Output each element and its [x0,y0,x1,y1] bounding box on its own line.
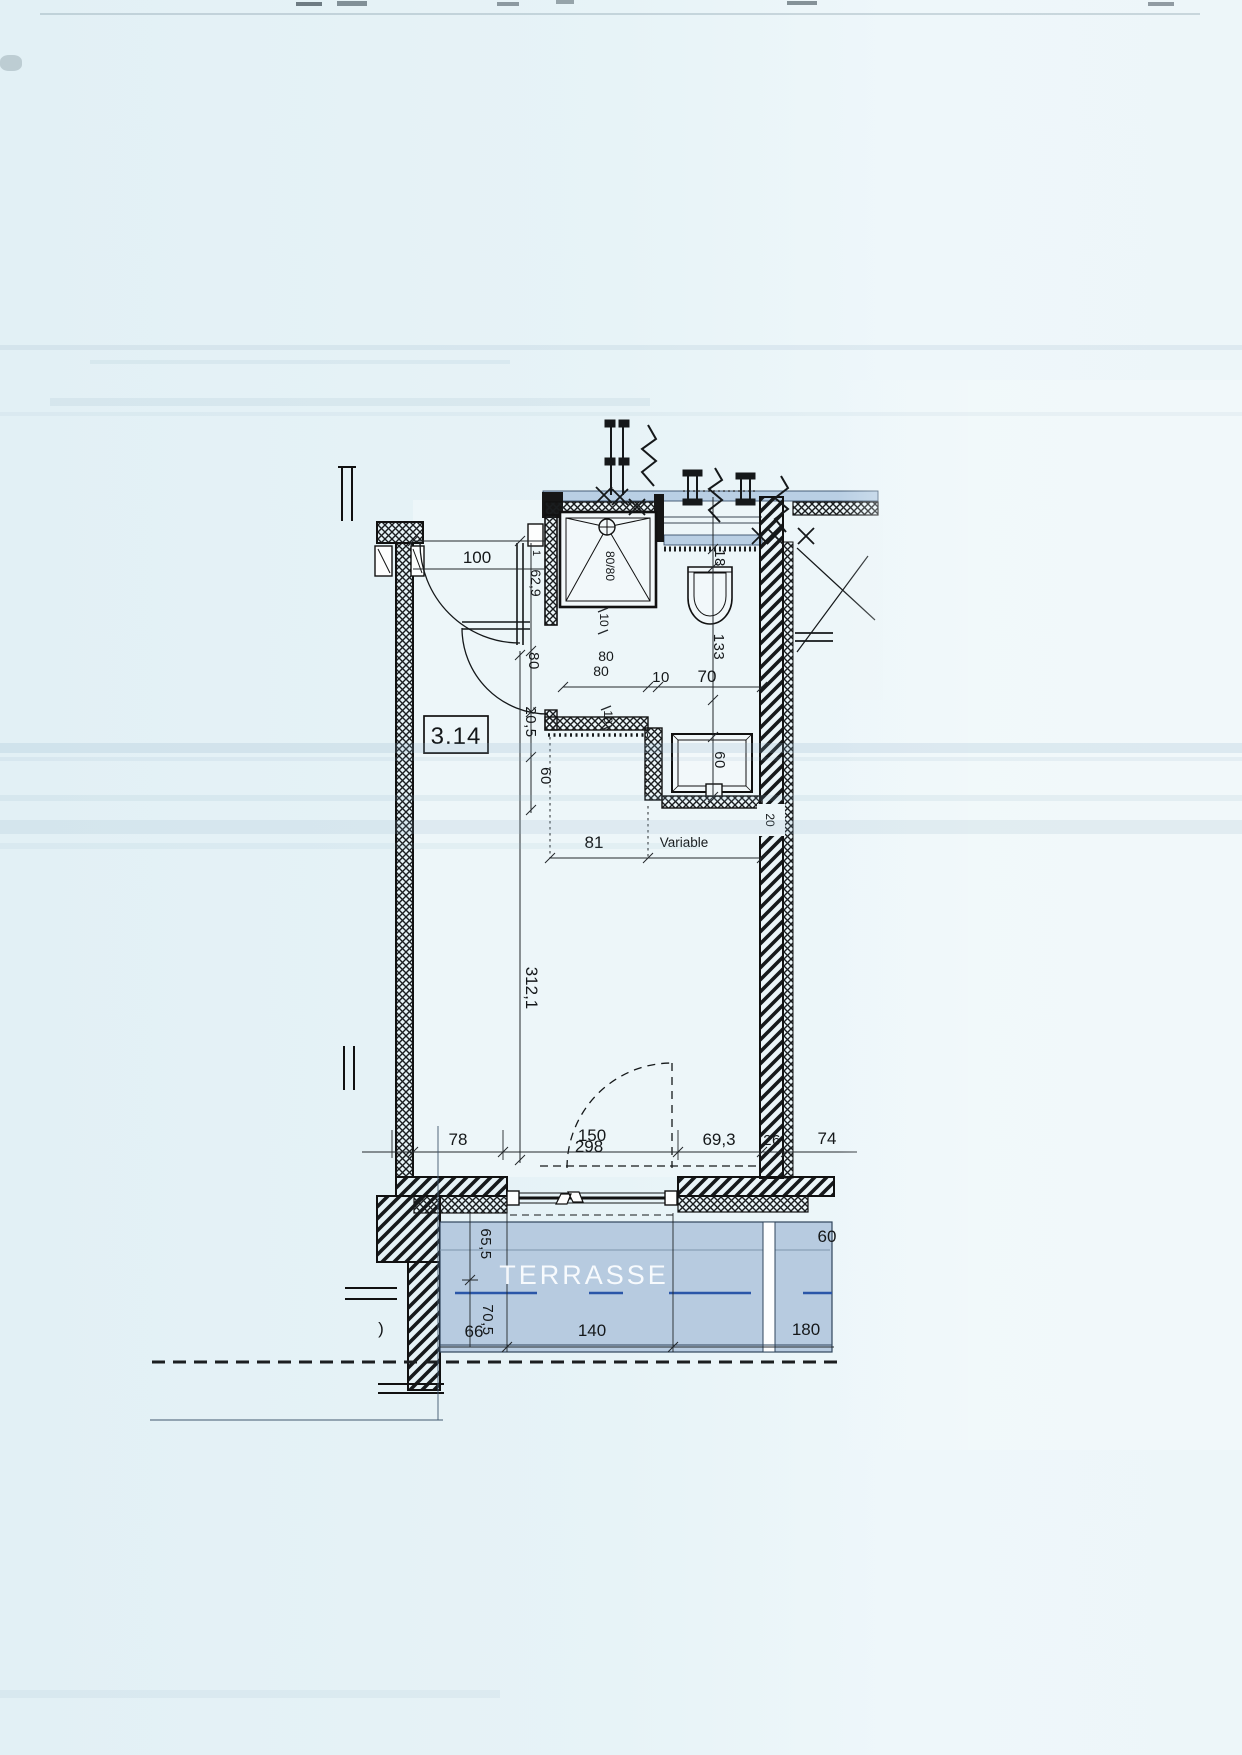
room-number: 3.14 [431,723,482,750]
dim-bottom-298: 298 [575,1137,603,1156]
bottom-wall-left [396,1177,507,1196]
dim-hall-depth: 60 [537,767,554,785]
dim-bath-door: 80 [525,652,542,670]
party-wall-lining [783,542,793,1178]
dim-terrace-66: 66 [465,1322,484,1341]
dim-entry-width: 100 [463,548,491,567]
scanned-floor-plan-page: 3.14 TERRASSE 100 1 62,9 80 20,5 60 80/8… [0,0,1242,1755]
left-exterior-wall [396,543,413,1177]
dim-terrace-140: 140 [578,1321,606,1340]
niche-step-wall [645,728,662,800]
dim-cutoff-paren: ) [378,1319,384,1338]
dim-bottom-74: 74 [818,1129,837,1148]
bottom-wall-right [678,1177,834,1196]
dim-bottom-78: 78 [449,1130,468,1149]
wall-t-cap [377,522,423,543]
dim-room-length: 312,1 [522,967,541,1010]
terrace-side-wall [408,1262,440,1390]
dim-entry-joint: 1 [530,550,542,556]
entry-jamb-block [528,524,543,546]
dim-door-step: 20,5 [522,706,539,737]
dim-shower-width-a: 80 [598,648,614,664]
bathroom-left-wall-upper [545,515,557,625]
basin-tap-icon [706,784,722,796]
scan-f fade-solid [968,380,1242,1450]
dim-bottom-69-3: 69,3 [702,1130,735,1149]
dim-bath-variable: Variable [660,835,709,850]
dim-wc-width: 70 [698,667,717,686]
dim-wall-band: 18 [711,549,728,567]
terrace [152,1222,840,1362]
floor-plan-drawing: 3.14 TERRASSE 100 1 62,9 80 20,5 60 80/8… [0,0,1242,1755]
dim-terrace-60: 60 [818,1227,837,1246]
wall-stub-mid [344,1046,354,1090]
dim-entry-offset: 62,9 [528,569,544,596]
wall-stub-bottom [345,1288,397,1299]
dim-terrace-180: 180 [792,1320,820,1339]
corner-wall [377,1196,440,1262]
toilet [688,567,732,624]
dim-shower-offset: 10 [597,613,611,627]
dim-wall-thickness: 20 [763,813,777,827]
zigzag-icon [642,425,656,486]
party-wall [760,497,783,1178]
dim-shower-size: 80/80 [603,551,617,581]
dim-wall-step: 10 [601,710,615,724]
dim-terrace-65-5: 65,5 [477,1228,494,1259]
dim-bottom-26: 26 [763,1132,781,1149]
terrace-label: TERRASSE [499,1260,669,1290]
dim-basin-niche: 60 [711,751,728,769]
dim-shower-width-b: 80 [593,663,609,679]
dim-wc-gap: 10 [652,669,670,686]
terrace-post [763,1222,775,1352]
dim-bath-width: 81 [585,833,604,852]
bathroom-bottom-wall [545,717,648,730]
window-handle-icon [556,1192,583,1204]
bottom-wall-right-lining [678,1196,808,1212]
scan-fade-gradient [838,380,972,1450]
wall-stub-top [338,467,356,521]
dim-wc-length: 133 [710,634,727,661]
